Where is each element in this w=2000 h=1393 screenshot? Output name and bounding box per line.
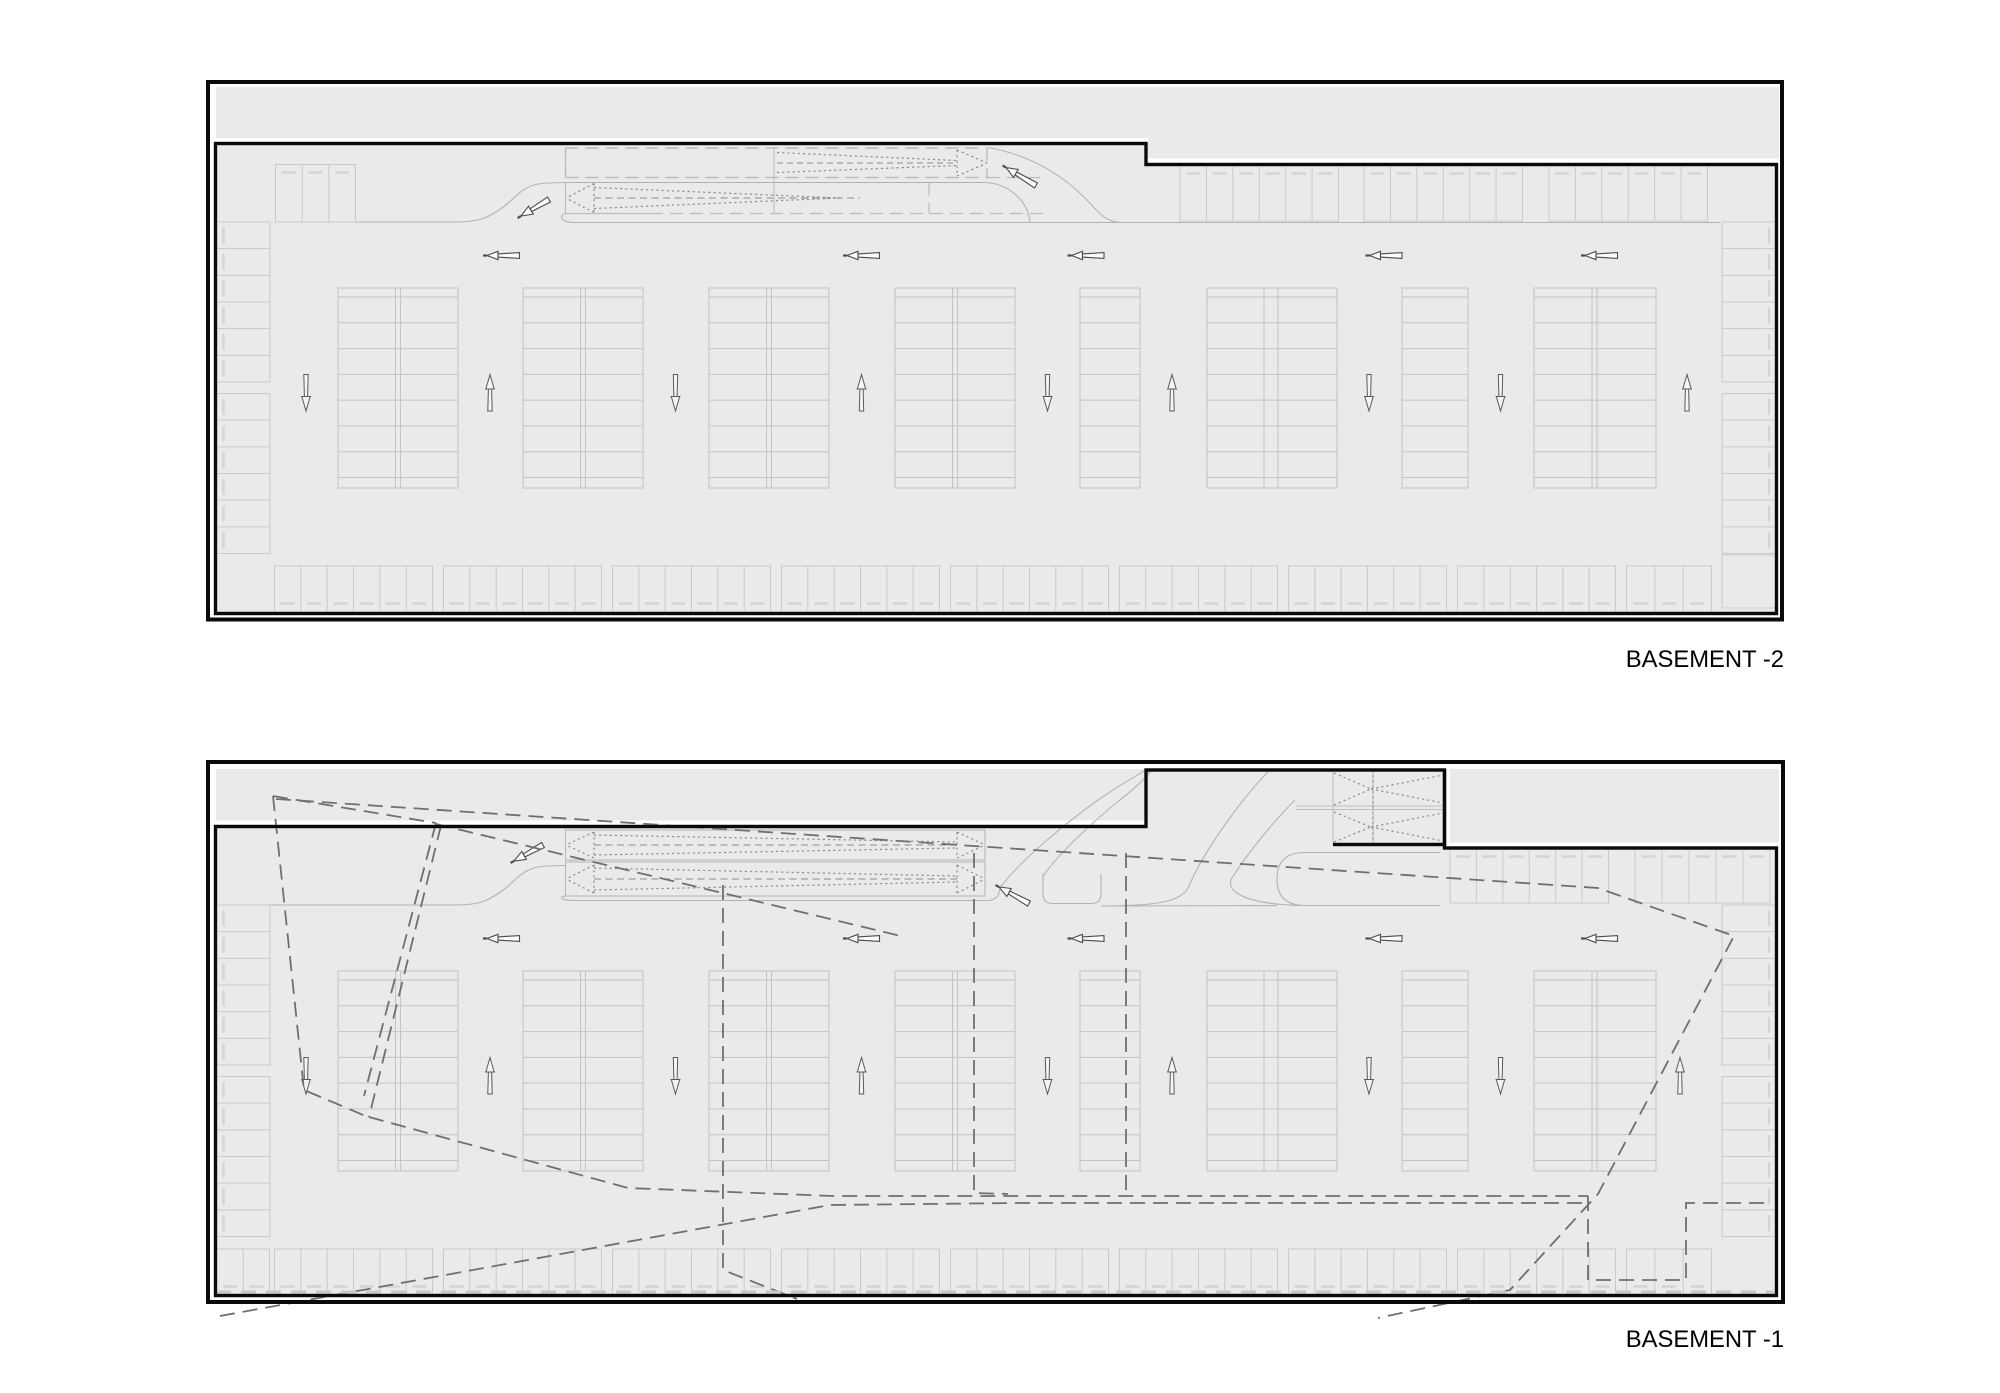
svg-text:BASEMENT -1: BASEMENT -1 — [1626, 1326, 1784, 1353]
svg-text:BASEMENT -2: BASEMENT -2 — [1626, 646, 1784, 673]
